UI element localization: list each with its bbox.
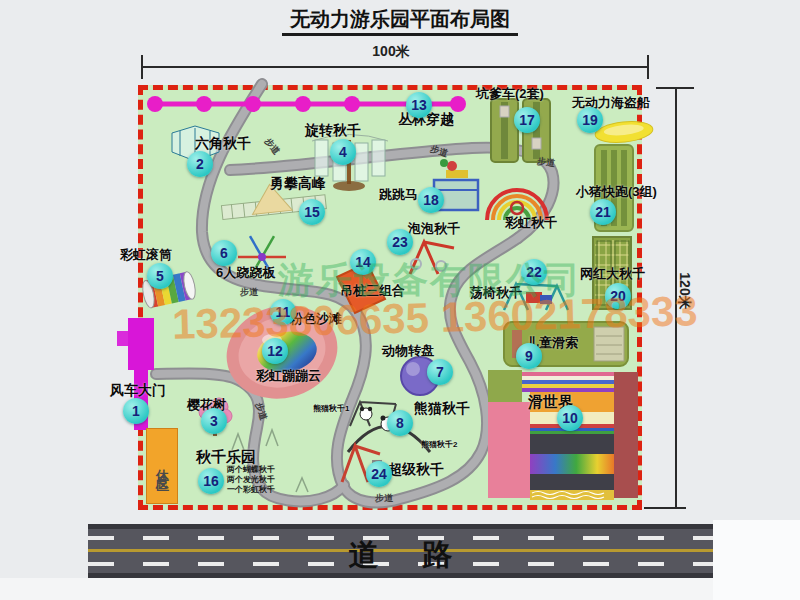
walkway-label-5: 步道: [375, 492, 393, 505]
page-title: 无动力游乐园平面布局图: [0, 6, 800, 33]
page: 1风车大门2六角秋千3樱花树4旋转秋千5彩虹滚筒66人跷跷板7动物转盘8熊猫秋千…: [0, 0, 800, 600]
marker-badge-5: 5: [147, 263, 173, 289]
small-label-2: 熊猫秋千2: [421, 439, 457, 450]
dimension-top-label: 100米: [138, 43, 644, 61]
marker-badge-23: 23: [387, 229, 413, 255]
attraction-label-14: 吊桩三组合: [340, 282, 405, 300]
marker-badge-24: 24: [366, 461, 392, 487]
attraction-label-21: 小猪快跑(3组): [576, 183, 657, 201]
attraction-label-24: 超级秋千: [388, 461, 444, 479]
road: 道路: [88, 524, 713, 578]
dimension-tick: [656, 87, 694, 89]
marker-badge-13: 13: [406, 92, 432, 118]
marker-badge-6: 6: [211, 240, 237, 266]
marker-badge-2: 2: [187, 151, 213, 177]
attraction-label-17: 坑爹车(2套): [476, 85, 544, 103]
attraction-label-22: 荡椅秋千: [470, 284, 522, 302]
attraction-label-2: 六角秋千: [195, 135, 251, 153]
walkway-label-2: 步道: [536, 155, 556, 170]
marker-badge-17: 17: [514, 107, 540, 133]
marker-badge-1: 1: [123, 398, 149, 424]
marker-badge-19: 19: [577, 107, 603, 133]
attraction-label-7: 动物转盘: [382, 342, 434, 360]
road-label: 道路: [88, 535, 713, 576]
dimension-right-label: 120米: [675, 269, 693, 313]
marker-badge-11: 11: [270, 299, 296, 325]
rest-area-block: 休息区: [146, 428, 178, 504]
attraction-label-20: 网红大秋千: [580, 265, 645, 283]
marker-badge-16: 16: [198, 468, 224, 494]
dimension-tick: [141, 55, 143, 79]
attraction-label-6: 6人跷跷板: [216, 264, 275, 282]
marker-badge-15: 15: [299, 199, 325, 225]
marker-badge-21: 21: [590, 199, 616, 225]
background-patch: [0, 578, 800, 600]
attraction-label-15: 勇攀高峰: [270, 175, 326, 193]
marker-badge-7: 7: [427, 359, 453, 385]
walkway-label-3: 步道: [240, 286, 258, 299]
marker-badge-22: 22: [521, 259, 547, 285]
dimension-tick: [644, 507, 686, 509]
attraction-label-5: 彩虹滚筒: [120, 246, 172, 264]
small-label-0: 彩虹秋千: [505, 214, 557, 232]
swing-note-2: 一个彩虹秋千: [227, 484, 275, 495]
marker-badge-3: 3: [201, 408, 227, 434]
attraction-label-12: 彩虹蹦蹦云: [256, 367, 321, 385]
dimension-tick: [647, 55, 649, 79]
marker-badge-10: 10: [557, 405, 583, 431]
attraction-label-8: 熊猫秋千: [414, 400, 470, 418]
attraction-label-11: 粉色沙滩: [290, 310, 342, 328]
attraction-label-18: 跳跳马: [379, 186, 418, 204]
marker-badge-4: 4: [330, 139, 356, 165]
attraction-label-23: 泡泡秋千: [408, 220, 460, 238]
marker-badge-12: 12: [262, 338, 288, 364]
marker-badge-9: 9: [516, 343, 542, 369]
attraction-label-4: 旋转秋千: [305, 122, 361, 140]
marker-badge-8: 8: [387, 410, 413, 436]
marker-badge-20: 20: [605, 283, 631, 309]
marker-badge-18: 18: [418, 187, 444, 213]
dimension-top-line: [142, 66, 648, 68]
small-label-1: 熊猫秋千1: [313, 403, 349, 414]
background-patch: [713, 520, 800, 600]
marker-badge-14: 14: [350, 249, 376, 275]
